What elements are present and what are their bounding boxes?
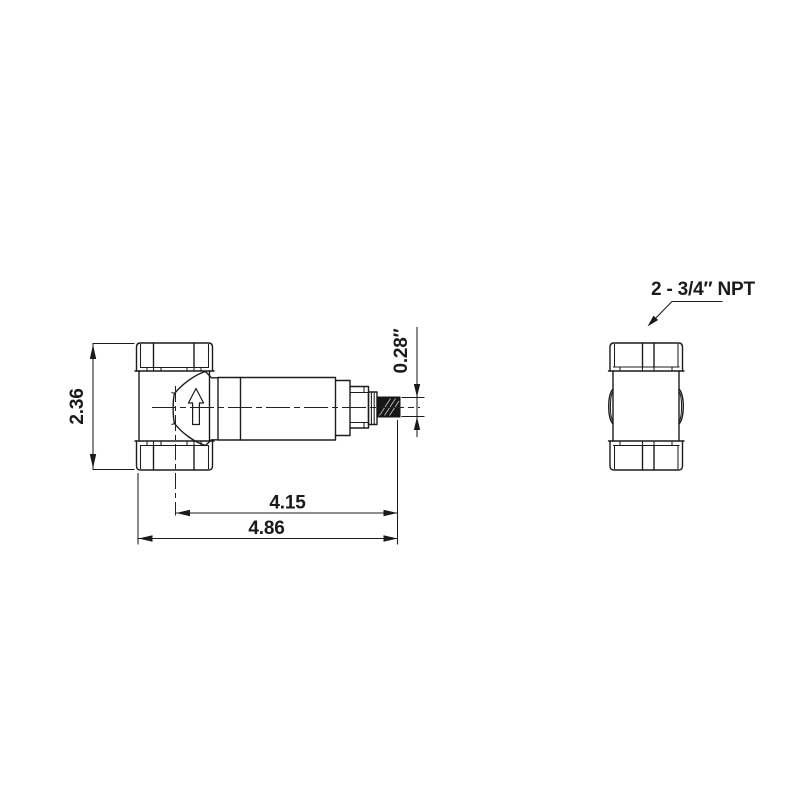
dim-length-inner-label: 4.15 (269, 493, 306, 514)
technical-drawing: 2.36 0.28″ 4.15 4.86 (0, 0, 800, 800)
dim-stub-label: 0.28″ (391, 328, 412, 373)
dim-overall-length-label: 4.86 (248, 518, 284, 539)
port-label: 2 - 3/4″ NPT (651, 279, 755, 300)
drawing-canvas: 2.36 0.28″ 4.15 4.86 (0, 0, 800, 800)
dim-height-label: 2.36 (67, 388, 88, 424)
